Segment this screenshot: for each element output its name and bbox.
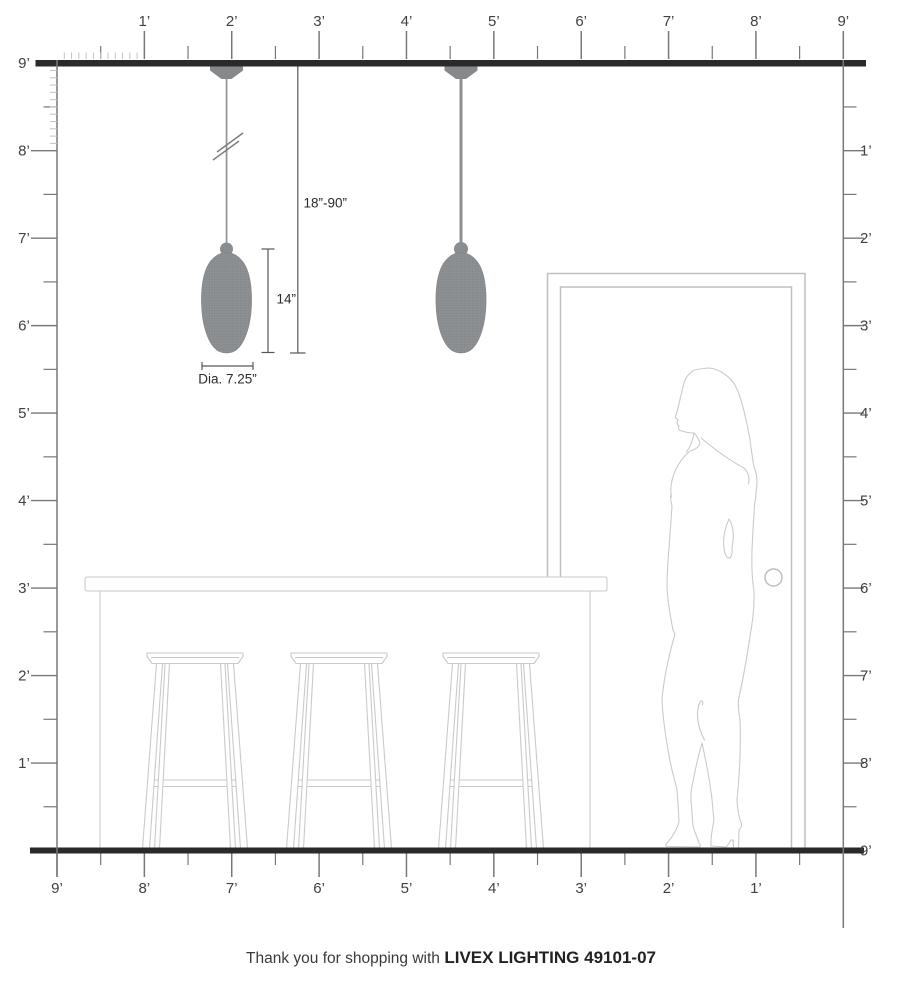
ruler-label: 6’ [860,580,872,597]
ruler-label: 9’ [51,880,63,897]
ruler-label: 4’ [488,880,500,897]
pendant-light-1 [201,66,251,353]
ruler-label: 3’ [575,880,587,897]
ruler-label: 8’ [139,880,151,897]
ruler-label: 6’ [313,880,325,897]
left-ruler: 9’8’7’6’5’4’3’2’1’ [18,55,57,877]
ceiling-line [36,60,867,67]
top-ruler: 1’2’3’4’5’6’7’8’9’ [64,13,849,59]
ruler-label: 5’ [488,13,500,30]
ruler-label: 7’ [226,880,238,897]
ruler-label: 7’ [18,230,30,247]
door-knob [765,569,782,586]
ruler-label: 6’ [18,318,30,335]
diameter-label: Dia. 7.25” [198,372,257,387]
canopy [445,66,478,79]
ruler-label: 8’ [18,143,30,160]
ruler-label: 2’ [18,668,30,685]
ruler-label: 7’ [663,13,675,30]
pendant-shade [436,253,486,354]
ruler-label: 3’ [313,13,325,30]
ruler-label: 9’ [860,843,872,860]
pendant-light-2 [436,66,486,353]
ruler-label: 3’ [860,318,872,335]
ruler-label: 1’ [860,143,872,160]
ruler-label: 1’ [139,13,151,30]
ruler-label: 3’ [18,580,30,597]
footer-text: Thank you for shopping with [246,950,440,967]
shade-height-label: 14” [277,292,297,307]
ruler-label: 2’ [860,230,872,247]
footer-brand: LIVEX LIGHTING 49101-07 [444,948,656,967]
bottom-ruler: 9’8’7’6’5’4’3’2’1’ [51,854,799,898]
ruler-label: 1’ [750,880,762,897]
ruler-label: 5’ [18,405,30,422]
ruler-label: 8’ [860,755,872,772]
cord [226,79,228,243]
ruler-label: 8’ [750,13,762,30]
ruler-label: 6’ [575,13,587,30]
ruler-label: 9’ [18,55,30,72]
ruler-label: 5’ [860,493,872,510]
ruler-label: 7’ [860,668,872,685]
ruler-label: 9’ [837,13,849,30]
diagram-canvas: 18”-90” 14” Dia. 7.25” 1’2’3’4’5’6’7’8’9… [0,0,902,948]
ruler-label: 4’ [401,13,413,30]
hanging-range-label: 18”-90” [304,196,348,211]
rod [460,79,463,243]
ruler-label: 5’ [401,880,413,897]
canopy [210,66,243,79]
ruler-label: 4’ [18,493,30,510]
floor-line [30,848,864,854]
ruler-label: 2’ [226,13,238,30]
ruler-label: 1’ [18,755,30,772]
footer-caption: Thank you for shopping with LIVEX LIGHTI… [0,948,902,968]
scale-diagram: 18”-90” 14” Dia. 7.25” 1’2’3’4’5’6’7’8’9… [0,0,902,990]
counter-top [85,577,607,591]
pendant-shade [201,253,251,354]
counter-body [100,591,590,849]
ruler-label: 4’ [860,405,872,422]
right-ruler: 1’2’3’4’5’6’7’8’9’ [843,60,871,928]
cord-break-icon [213,133,243,160]
ruler-label: 2’ [663,880,675,897]
